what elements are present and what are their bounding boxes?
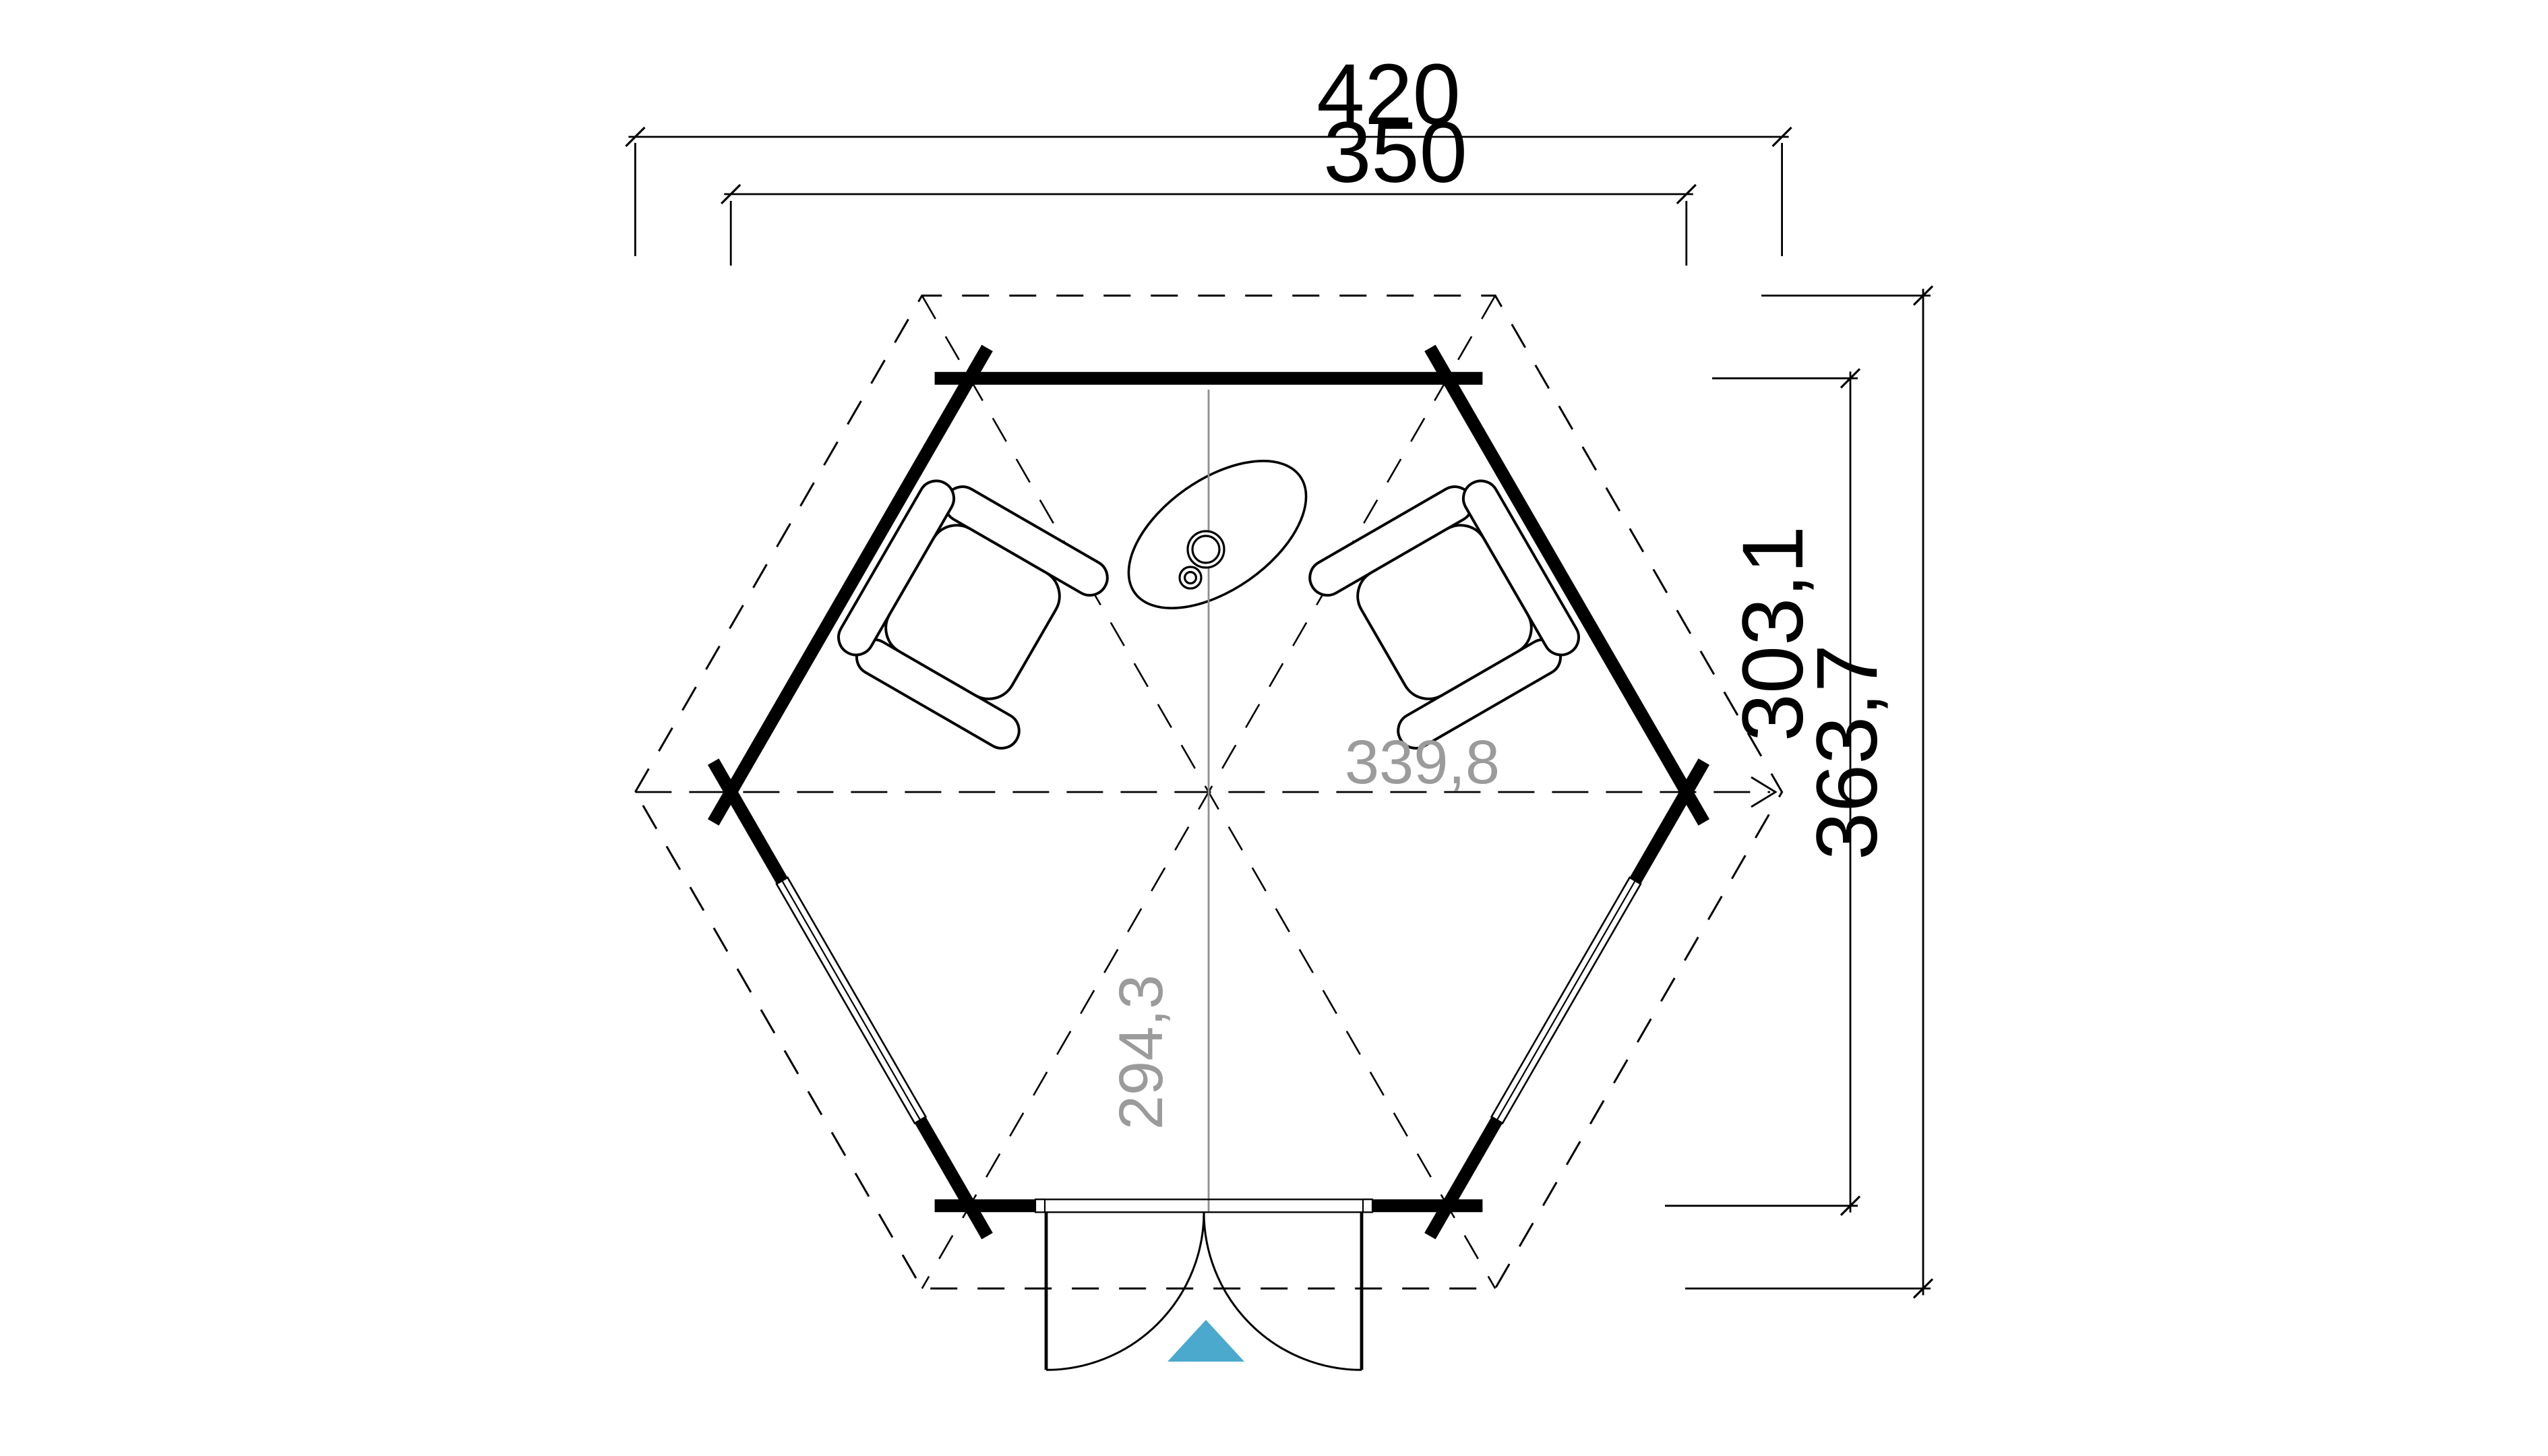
window-lower-right bbox=[1492, 878, 1641, 1124]
dimension-wall-width bbox=[721, 185, 1696, 266]
small-cup-inner-icon bbox=[1185, 572, 1196, 584]
dim-roof-height-label: 363,7 bbox=[1799, 644, 1895, 860]
centerline-arrow-icon bbox=[1751, 777, 1776, 807]
floor-plan-drawing: 420 350 303,1 363,7 339,8 294,3 bbox=[0, 0, 2548, 1456]
wall-lower-left-b bbox=[920, 1120, 987, 1236]
armchair-right bbox=[1304, 468, 1589, 755]
dimension-roof-width bbox=[626, 127, 1791, 256]
armchair-left bbox=[828, 468, 1114, 755]
dim-inner-height-label: 294,3 bbox=[1107, 975, 1176, 1130]
dim-inner-width-label: 339,8 bbox=[1345, 728, 1500, 797]
door-jamb-left bbox=[1035, 1199, 1045, 1212]
door-jamb-right bbox=[1363, 1199, 1372, 1212]
door-swing-left bbox=[1046, 1212, 1204, 1370]
wall-lower-right-b bbox=[1430, 1120, 1496, 1236]
large-cup-inner-icon bbox=[1192, 536, 1219, 563]
wall-lower-left-a bbox=[713, 762, 782, 881]
wall-lower-right-a bbox=[1635, 762, 1704, 881]
entrance-arrow-icon bbox=[1167, 1320, 1244, 1362]
window-lower-right-glass-line bbox=[1497, 881, 1635, 1120]
dim-wall-width-label: 350 bbox=[1323, 104, 1467, 201]
horizontal-centerline bbox=[635, 777, 1776, 807]
window-lower-left bbox=[777, 878, 926, 1124]
window-lower-left-glass-line bbox=[782, 881, 920, 1120]
